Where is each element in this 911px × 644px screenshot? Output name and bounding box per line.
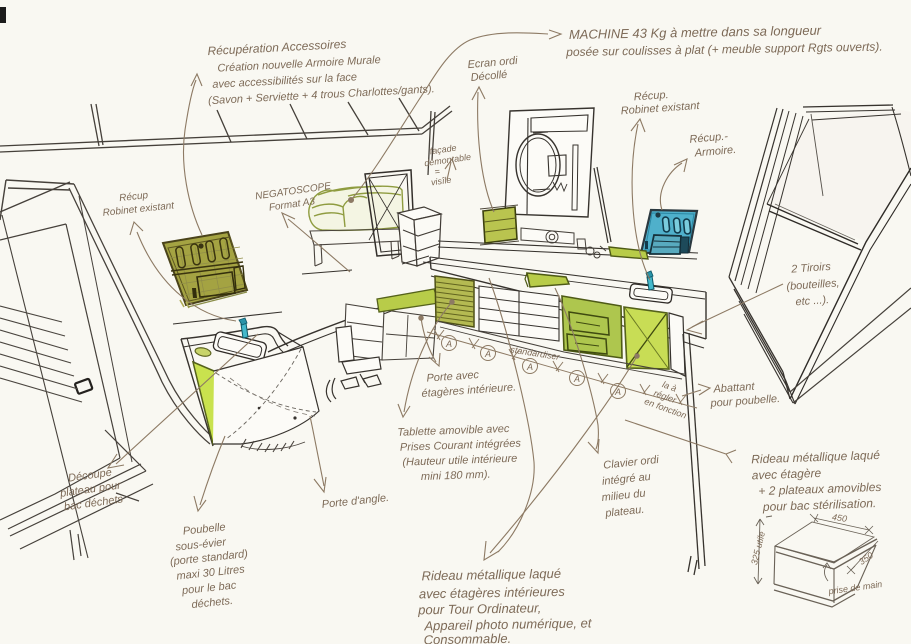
- svg-text:avec étagère: avec étagère: [752, 466, 822, 482]
- svg-text:A: A: [484, 349, 491, 359]
- svg-text:A: A: [526, 362, 533, 372]
- svg-text:Récup.: Récup.: [633, 89, 669, 103]
- svg-text:pour Tour Ordinateur,: pour Tour Ordinateur,: [417, 600, 541, 617]
- svg-text:A: A: [614, 387, 621, 397]
- svg-text:avec étagères intérieures: avec étagères intérieures: [419, 584, 566, 602]
- svg-text:A: A: [445, 339, 452, 349]
- svg-text:Rideau métallique laqué: Rideau métallique laqué: [421, 566, 561, 583]
- svg-text:mini 180 mm).: mini 180 mm).: [421, 469, 491, 483]
- svg-text:etc ...).: etc ...).: [795, 294, 829, 308]
- svg-text:A: A: [573, 374, 580, 384]
- svg-text:Consommable.: Consommable.: [424, 631, 512, 644]
- svg-text:450: 450: [831, 512, 847, 524]
